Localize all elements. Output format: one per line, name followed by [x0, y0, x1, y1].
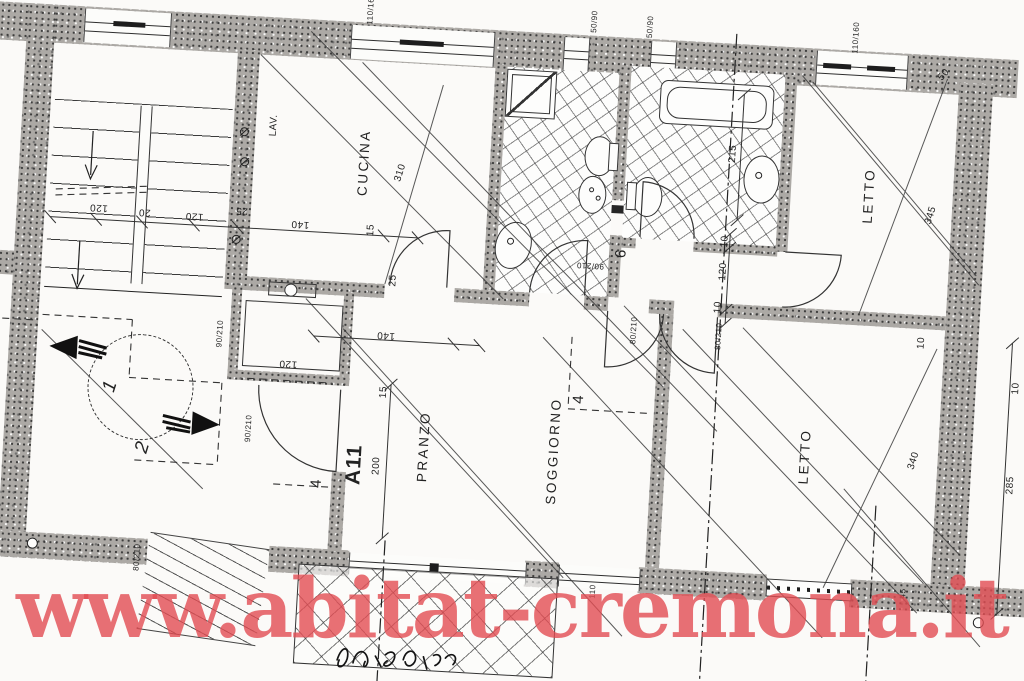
dim-label: 215 — [727, 144, 739, 163]
dim-label: 25 — [235, 205, 248, 217]
dim-label-window: 110/160 — [365, 0, 376, 25]
zone-number-4: 4 — [308, 479, 325, 489]
dim-label-door: 90/210 — [214, 320, 225, 348]
room-label-letto-2: LETTO — [796, 428, 814, 485]
dim-label-elevator: 120 — [279, 358, 298, 370]
dim-label-window: 50/90 — [645, 15, 655, 38]
zone-number-6: 6 — [612, 249, 629, 259]
dim-label: 200 — [370, 456, 382, 475]
dim-label: 15 — [378, 386, 390, 399]
dim-label-window: 110/160 — [850, 22, 861, 54]
dim-label-door: 80/210 — [628, 316, 639, 344]
scanned-floor-plan: CUCINA PRANZO SOGGIORNO LETTO LETTO LAV.… — [0, 0, 1024, 681]
dim-label: 285 — [1004, 476, 1016, 495]
dim-label-door: 80/210 — [713, 322, 724, 350]
dim-label-door: 90/210 — [576, 261, 604, 272]
dim-label: 10 — [1010, 382, 1022, 395]
zone-boundary-dashes — [0, 176, 663, 506]
dim-label: 10 — [712, 301, 724, 314]
dim-label: 120 — [89, 201, 108, 213]
dim-label-window: 50/90 — [589, 10, 599, 33]
dim-label: 25 — [387, 274, 399, 287]
landing-flow-arrows — [46, 335, 223, 436]
watermark-text: www.abitat-cremona.it — [0, 568, 1024, 650]
dim-label-door: 90/210 — [243, 414, 254, 442]
dim-label: 10 — [719, 235, 731, 248]
dim-label: 120 — [185, 210, 204, 222]
dim-label: 120 — [717, 262, 729, 281]
apartment-label: A11 — [341, 444, 367, 486]
dim-label: 20 — [138, 206, 151, 218]
dim-label: 15 — [365, 224, 377, 237]
room-label-letto-1: LETTO — [860, 167, 878, 224]
dim-label: 140 — [377, 329, 396, 341]
zone-number-4b: 4 — [570, 394, 587, 404]
dim-label: 10 — [916, 337, 928, 350]
room-label-lav: LAV. — [268, 114, 280, 137]
dim-label: 140 — [291, 218, 310, 230]
